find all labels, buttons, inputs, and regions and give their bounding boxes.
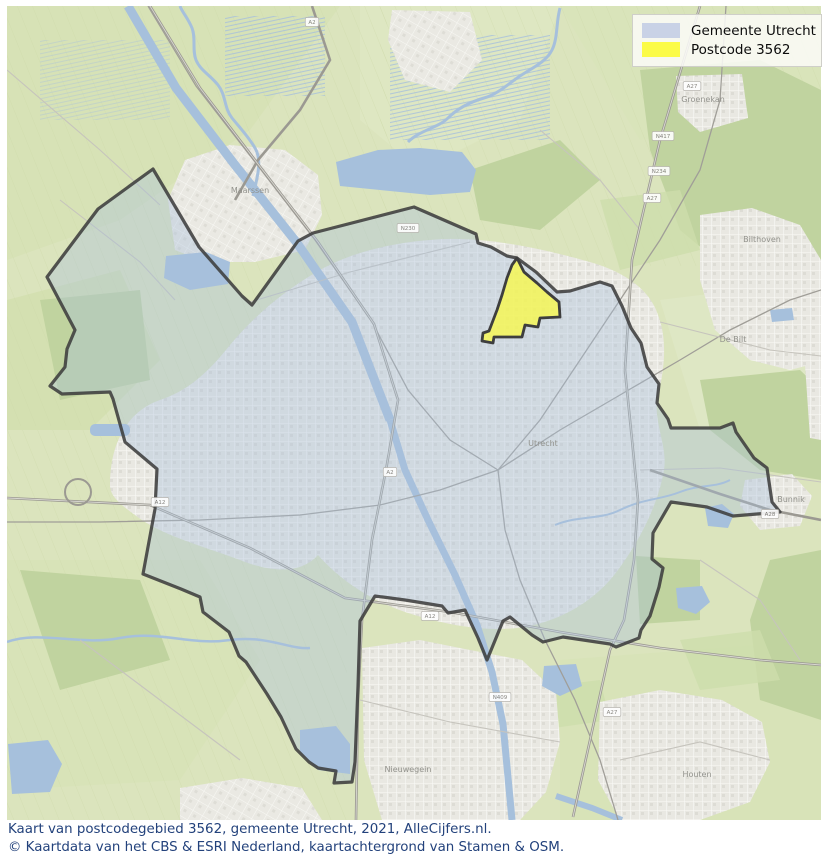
svg-text:A28: A28 bbox=[765, 512, 776, 518]
road-shield-a27: A27 bbox=[683, 82, 701, 91]
legend-label-postcode: Postcode 3562 bbox=[691, 42, 790, 58]
legend: Gemeente Utrecht Postcode 3562 bbox=[632, 14, 822, 67]
road-shield-n409: N409 bbox=[489, 693, 511, 702]
road-shield-n230: N230 bbox=[397, 224, 419, 233]
road-shield-a2: A2 bbox=[305, 18, 318, 27]
road-shield-a2: A2 bbox=[383, 468, 396, 477]
place-label-bunnik: Bunnik bbox=[777, 495, 805, 504]
caption-line-2: © Kaartdata van het CBS & ESRI Nederland… bbox=[8, 839, 820, 857]
screenshot-root: A2A27N417N234A27N230A2A12A12A28A27N409 M… bbox=[0, 0, 828, 861]
road-shield-n417: N417 bbox=[652, 132, 674, 141]
svg-text:A27: A27 bbox=[607, 710, 618, 716]
place-label-maarssen: Maarssen bbox=[231, 186, 269, 195]
legend-swatch-postcode bbox=[642, 42, 680, 57]
svg-text:A27: A27 bbox=[687, 84, 698, 90]
svg-text:A27: A27 bbox=[647, 196, 658, 202]
svg-text:N417: N417 bbox=[656, 134, 671, 140]
svg-text:N230: N230 bbox=[401, 226, 416, 232]
road-shield-a27: A27 bbox=[603, 708, 621, 717]
caption-line-1: Kaart van postcodegebied 3562, gemeente … bbox=[8, 821, 820, 839]
map-canvas: A2A27N417N234A27N230A2A12A12A28A27N409 M… bbox=[7, 6, 821, 820]
place-label-nieuwegein: Nieuwegein bbox=[385, 765, 432, 774]
place-label-groenekan: Groenekan bbox=[681, 95, 725, 104]
svg-text:A2: A2 bbox=[308, 20, 315, 26]
place-label-houten: Houten bbox=[682, 770, 711, 779]
road-shield-a28: A28 bbox=[761, 510, 779, 519]
svg-text:N409: N409 bbox=[493, 695, 508, 701]
svg-text:A2: A2 bbox=[386, 470, 393, 476]
svg-text:A12: A12 bbox=[155, 500, 166, 506]
svg-text:N234: N234 bbox=[652, 169, 667, 175]
legend-label-gemeente: Gemeente Utrecht bbox=[691, 23, 816, 39]
legend-row-gemeente: Gemeente Utrecht bbox=[642, 21, 812, 40]
place-label-bilthoven: Bilthoven bbox=[743, 235, 781, 244]
place-label-utrecht: Utrecht bbox=[528, 439, 558, 448]
legend-row-postcode: Postcode 3562 bbox=[642, 40, 812, 59]
road-shield-a27: A27 bbox=[643, 194, 661, 203]
svg-text:A12: A12 bbox=[425, 614, 436, 620]
legend-swatch-gemeente bbox=[642, 23, 680, 38]
place-label-de bilt: De Bilt bbox=[720, 335, 747, 344]
road-shield-a12: A12 bbox=[151, 498, 169, 507]
road-shield-n234: N234 bbox=[648, 167, 670, 176]
caption: Kaart van postcodegebied 3562, gemeente … bbox=[8, 821, 820, 857]
road-shield-a12: A12 bbox=[421, 612, 439, 621]
